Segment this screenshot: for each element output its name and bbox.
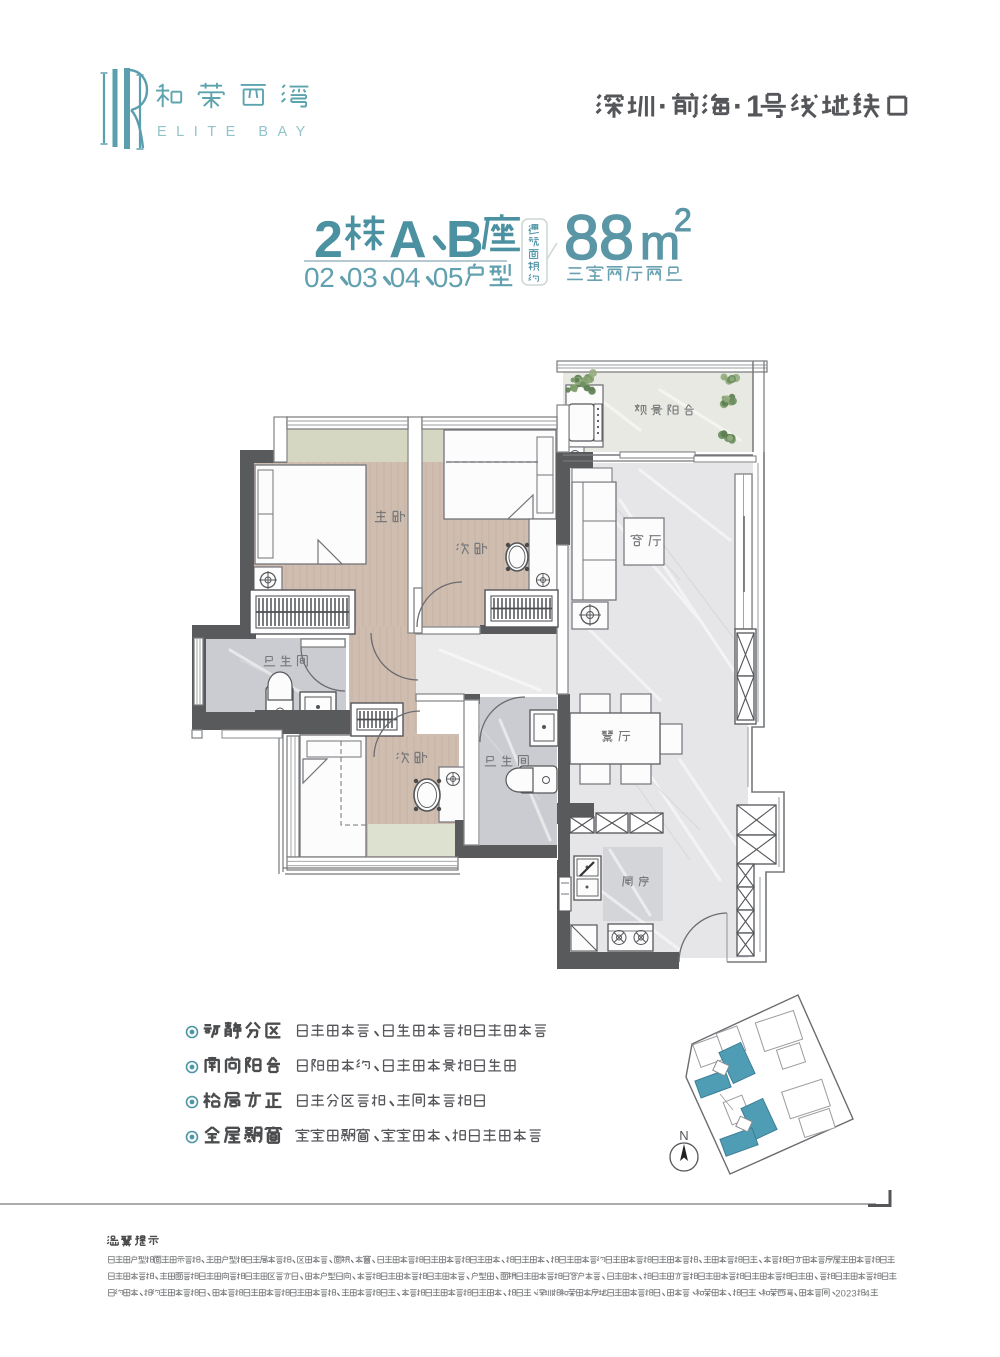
svg-text:88: 88	[564, 203, 634, 273]
svg-text:2: 2	[319, 262, 335, 293]
svg-text:0: 0	[433, 262, 449, 293]
svg-text:ELITE BAY: ELITE BAY	[157, 124, 315, 140]
svg-text:·: ·	[658, 89, 668, 124]
svg-text:2: 2	[674, 202, 692, 238]
svg-text:5: 5	[448, 262, 464, 293]
svg-text:4: 4	[865, 1289, 870, 1300]
svg-text:1: 1	[746, 89, 763, 124]
svg-text:0: 0	[304, 262, 320, 293]
svg-text:3: 3	[851, 1289, 856, 1300]
svg-text:N: N	[679, 1128, 688, 1143]
svg-text:0: 0	[390, 262, 406, 293]
svg-text:4: 4	[405, 262, 421, 293]
svg-text:3: 3	[362, 262, 378, 293]
svg-text:0: 0	[347, 262, 363, 293]
svg-text:·: ·	[733, 89, 743, 124]
